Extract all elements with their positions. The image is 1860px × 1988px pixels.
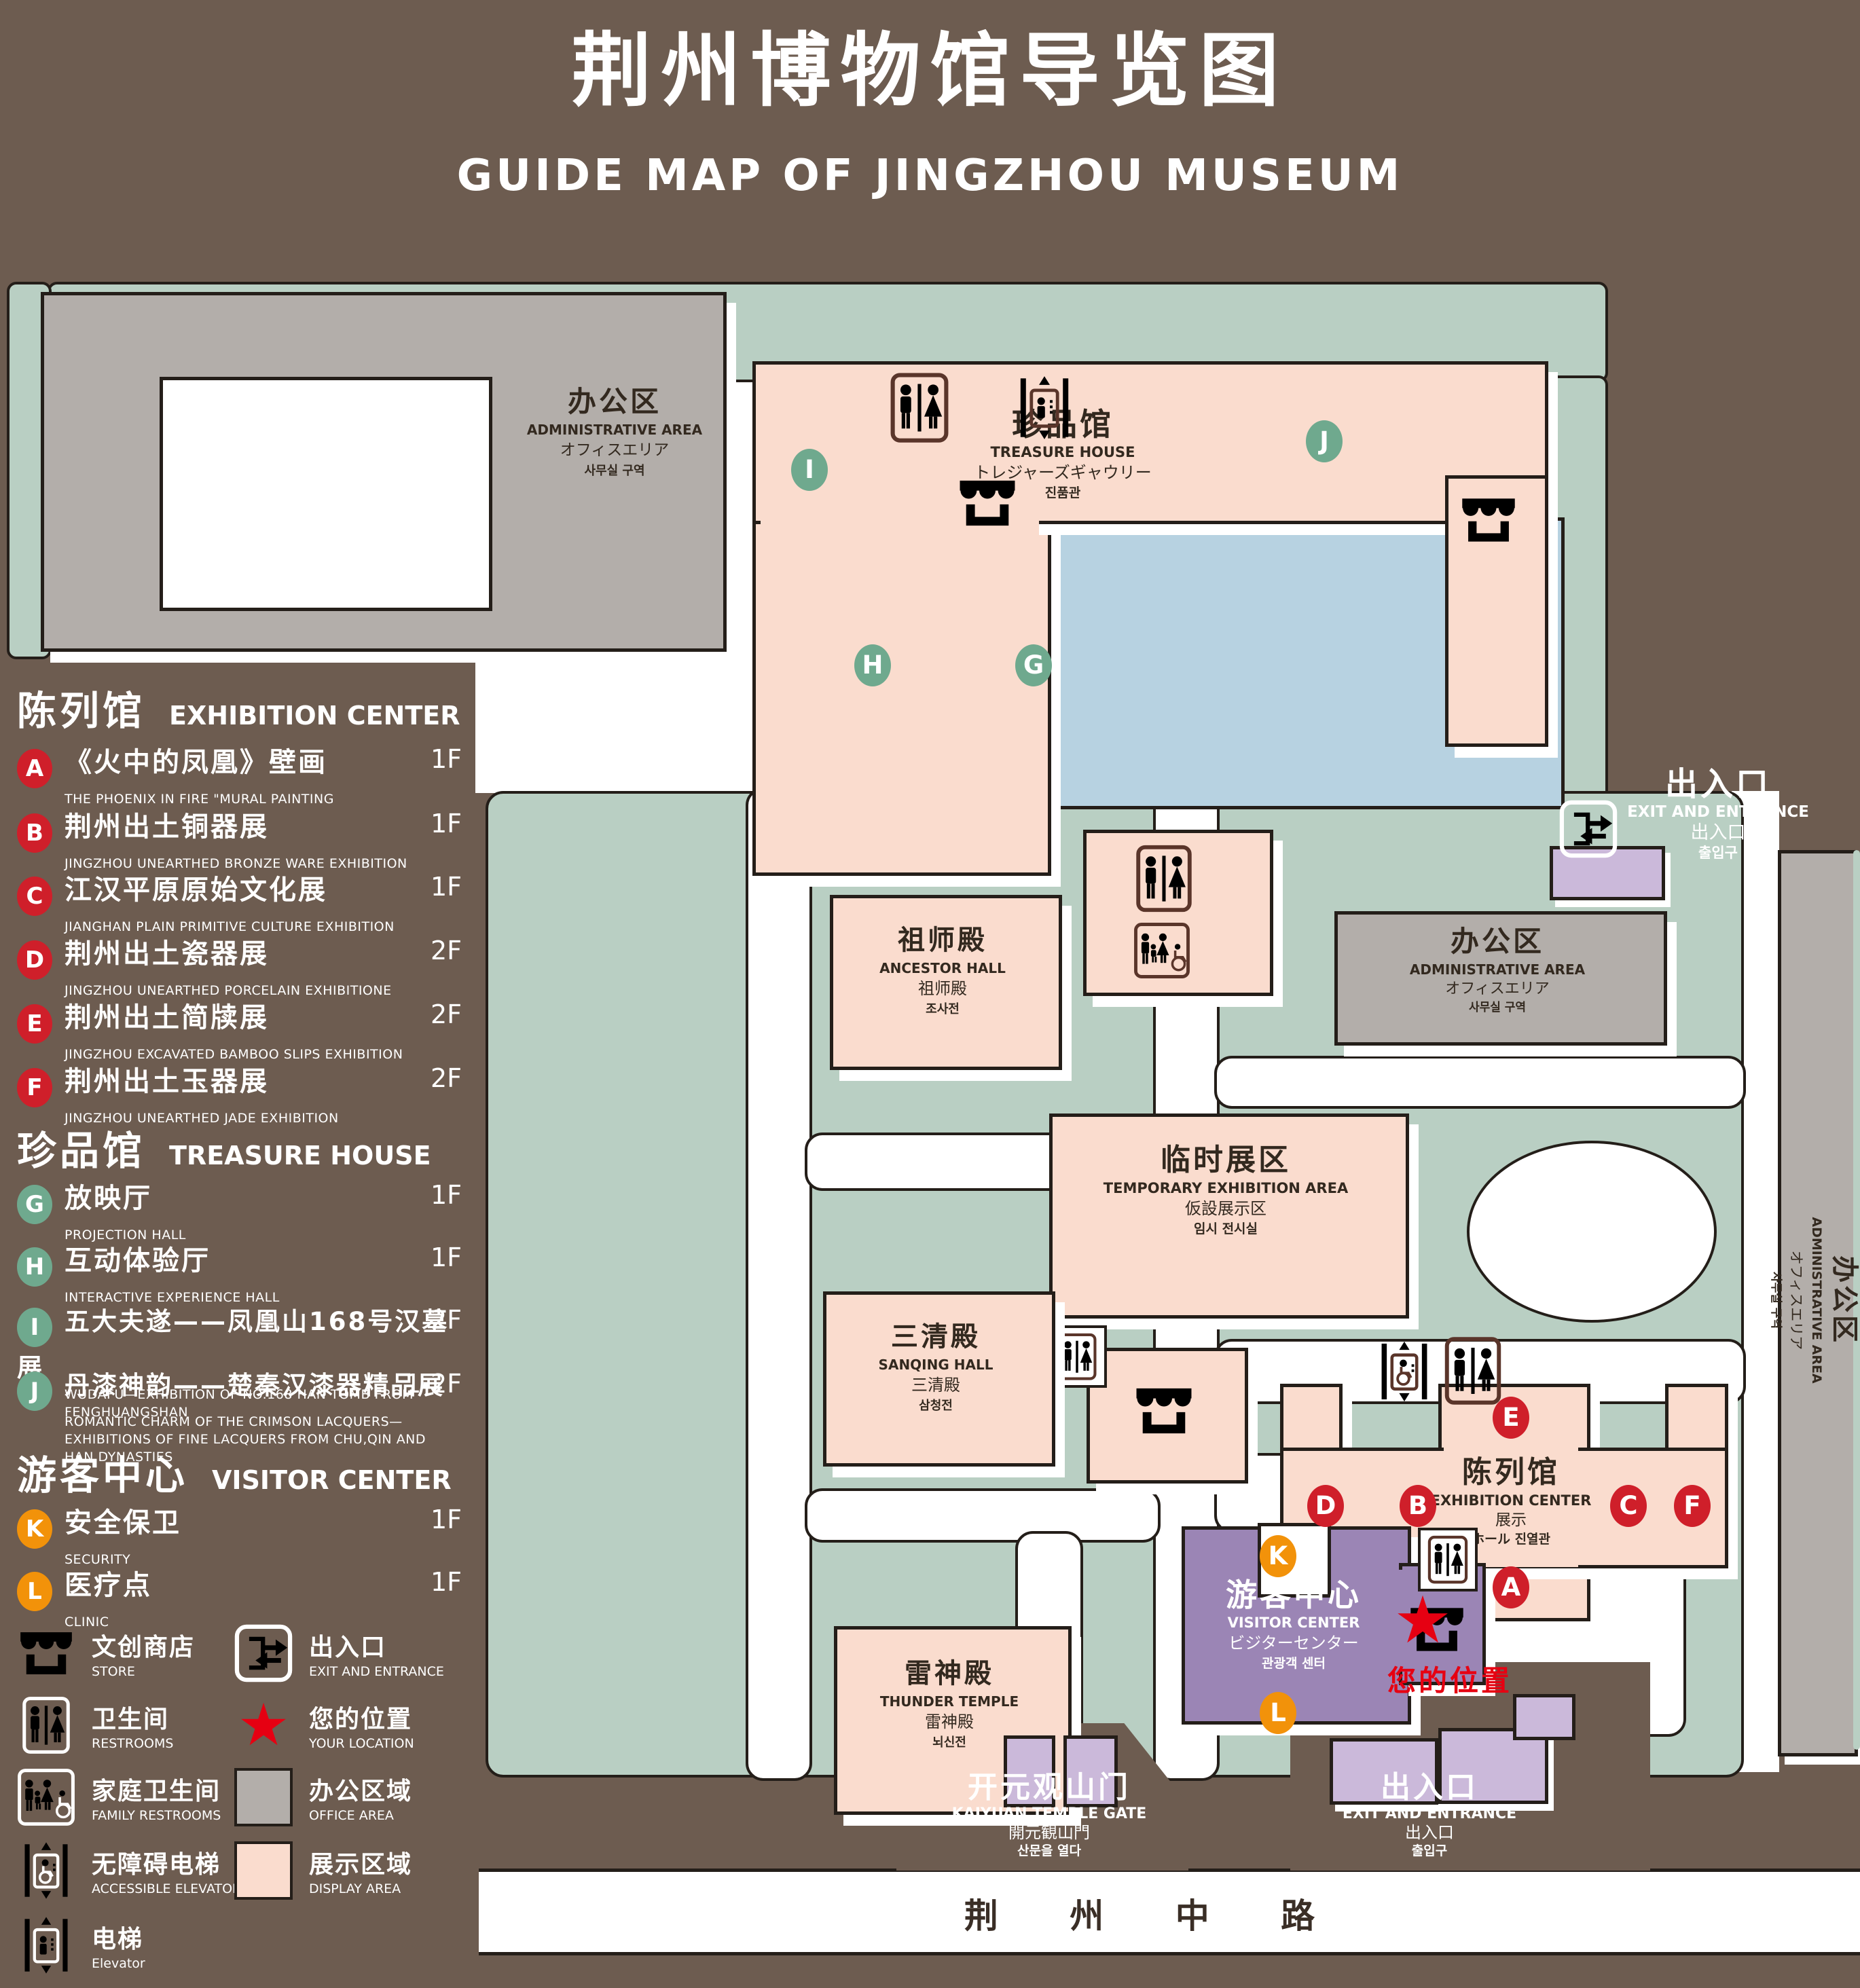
- restroom-icon: [1426, 1535, 1470, 1584]
- legend-section-treasure: 珍品馆TREASURE HOUSE: [17, 1119, 431, 1176]
- legend-item-k: K安全保卫 1F SECURITY: [17, 1501, 462, 1568]
- restroom-tile: [1047, 1325, 1107, 1388]
- map-marker-j: J: [1306, 420, 1343, 462]
- badge-e: E: [17, 1004, 52, 1044]
- label-temporary: 临时展区 TEMPORARY EXHIBITION AREA 仮設展示区 임시 …: [1104, 1142, 1348, 1238]
- your-location-star: ★: [1393, 1587, 1452, 1653]
- map-marker-c: C: [1610, 1485, 1647, 1527]
- elevator-icon: [1017, 372, 1072, 443]
- map-marker-i: I: [791, 449, 828, 491]
- badge-g: G: [17, 1185, 52, 1224]
- legend-symbol-restrooms: 卫生间RESTROOMS: [17, 1696, 173, 1754]
- location-star-icon: ★: [237, 1696, 289, 1754]
- exit-icon: [234, 1624, 293, 1682]
- map-marker-g: G: [1015, 644, 1052, 686]
- map-marker-k: K: [1260, 1535, 1296, 1577]
- label-admin-topleft: 办公区 ADMINISTRATIVE AREA オフィスエリア 사무실 구역: [527, 384, 702, 480]
- map-marker-b: B: [1400, 1485, 1436, 1527]
- label-exit-south: 出入口 EXIT AND ENTRANCE 出入口 출입구: [1343, 1771, 1516, 1859]
- page-title: 荆州博物馆导览图: [0, 5, 1860, 122]
- legend-section-visitor: 游客中心VISITOR CENTER: [17, 1443, 452, 1501]
- legend-symbol-family-restrooms: 家庭卫生间FAMILY RESTROOMS: [17, 1768, 221, 1826]
- accessible-elevator-icon: [1379, 1339, 1430, 1404]
- store-icon: [1459, 490, 1518, 550]
- path-h-between-halls-2: [805, 1488, 1161, 1543]
- restroom-icon: [1055, 1333, 1099, 1381]
- legend-item-c: C江汉平原原始文化展 1F JIANGHAN PLAIN PRIMITIVE C…: [17, 868, 462, 936]
- store-icon: [956, 472, 1019, 534]
- map-marker-f: F: [1674, 1485, 1711, 1527]
- map-marker-d: D: [1307, 1485, 1344, 1527]
- legend-symbol-exit: 出入口EXIT AND ENTRANCE: [234, 1624, 444, 1682]
- legend-symbol-office-area: 办公区域OFFICE AREA: [234, 1768, 412, 1826]
- office-area-swatch: [234, 1768, 293, 1826]
- map-marker-e: E: [1493, 1397, 1529, 1439]
- admin-courtyard: [160, 377, 492, 611]
- store-icon: [1133, 1380, 1195, 1442]
- exit-icon: [1559, 800, 1618, 858]
- legend-symbol-elevator: 电梯Elevator: [17, 1916, 145, 1974]
- service-block-south-3: [1513, 1694, 1575, 1740]
- badge-k: K: [17, 1509, 52, 1549]
- label-exit-topright: 出入口 EXIT AND ENTRANCE 出入口 출입구: [1627, 766, 1809, 862]
- legend-item-l: L医疗点 1F CLINIC: [17, 1563, 462, 1631]
- legend-symbol-display-area: 展示区域DISPLAY AREA: [234, 1841, 412, 1900]
- restroom-icon: [17, 1696, 75, 1754]
- legend-item-g: G放映厅 1F PROJECTION HALL: [17, 1176, 462, 1244]
- label-road: 荆 州 中 路: [964, 1889, 1345, 1938]
- accessible-elevator-icon: [17, 1841, 75, 1900]
- badge-f: F: [17, 1068, 52, 1107]
- badge-d: D: [17, 940, 52, 980]
- exhibition-seam-2: [1444, 1445, 1578, 1454]
- legend-item-b: B荆州出土铜器展 1F JINGZHOU UNEARTHED BRONZE WA…: [17, 805, 462, 872]
- label-thunder: 雷神殿 THUNDER TEMPLE 雷神殿 뇌신전: [880, 1655, 1019, 1752]
- badge-j: J: [17, 1372, 52, 1411]
- restroom-icon: [890, 372, 949, 443]
- page-subtitle: GUIDE MAP OF JINGZHOU MUSEUM: [0, 151, 1860, 201]
- legend-section-exhibition: 陈列馆EXHIBITION CENTER: [17, 679, 460, 736]
- map-marker-a: A: [1493, 1566, 1529, 1608]
- restroom-icon: [1444, 1336, 1502, 1405]
- label-visitor: 游客中心 VISITOR CENTER ビジターセンター 관광객 센터: [1226, 1577, 1362, 1673]
- legend-item-d: D荆州出土瓷器展 2F JINGZHOU UNEARTHED PORCELAIN…: [17, 932, 462, 999]
- guide-map-poster: 荆州博物馆导览图 GUIDE MAP OF JINGZHOU MUSEUM 办公…: [0, 0, 1860, 1988]
- family-restroom-icon: [17, 1768, 75, 1826]
- legend-item-h: H互动体验厅 1F INTERACTIVE EXPERIENCE HALL: [17, 1238, 462, 1306]
- store-icon: [17, 1624, 75, 1682]
- path-vertical-west: [746, 788, 812, 1781]
- path-garden-north: [1214, 1056, 1746, 1109]
- your-location-label: 您的位置: [1387, 1658, 1512, 1699]
- display-area-swatch: [234, 1841, 293, 1900]
- legend-symbol-store: 文创商店STORE: [17, 1624, 195, 1682]
- legend-symbol-accessible-elevator: 无障碍电梯ACCESSIBLE ELEVATOR: [17, 1841, 241, 1900]
- badge-c: C: [17, 877, 52, 916]
- legend-item-f: F荆州出土玉器展 2F JINGZHOU UNEARTHED JADE EXHI…: [17, 1059, 462, 1127]
- badge-i: I: [17, 1308, 52, 1347]
- legend-item-a: A《火中的凤凰》壁画 1F THE PHOENIX IN FIRE "MURAL…: [17, 740, 462, 808]
- elevator-icon: [17, 1916, 75, 1974]
- badge-l: L: [17, 1572, 52, 1611]
- label-sanqing: 三清殿 SANQING HALL 三清殿 삼청전: [879, 1319, 993, 1415]
- badge-a: A: [17, 749, 52, 788]
- label-admin-right: 办公区 ADMINISTRATIVE AREA オフィスエリア 사무실 구역: [1766, 1217, 1860, 1383]
- badge-h: H: [17, 1247, 52, 1287]
- map-marker-l: L: [1260, 1692, 1296, 1734]
- legend-item-e: E荆州出土简牍展 2F JINGZHOU EXCAVATED BAMBOO SL…: [17, 995, 462, 1063]
- family-restroom-icon: [1129, 922, 1195, 979]
- label-ancestor: 祖师殿 ANCESTOR HALL 祖师殿 조사전: [879, 922, 1006, 1018]
- restroom-icon: [1135, 842, 1192, 915]
- label-admin-mid: 办公区 ADMINISTRATIVE AREA オフィスエリア 사무실 구역: [1410, 923, 1585, 1016]
- badge-b: B: [17, 813, 52, 853]
- legend-symbol-your-location: ★ 您的位置YOUR LOCATION: [234, 1696, 414, 1754]
- label-gate: 开元观山门 KAIYUAN TEMPLE GATE 開元観山門 산문을 열다: [952, 1771, 1147, 1859]
- garden-pond: [1467, 1141, 1717, 1323]
- map-marker-h: H: [854, 644, 891, 686]
